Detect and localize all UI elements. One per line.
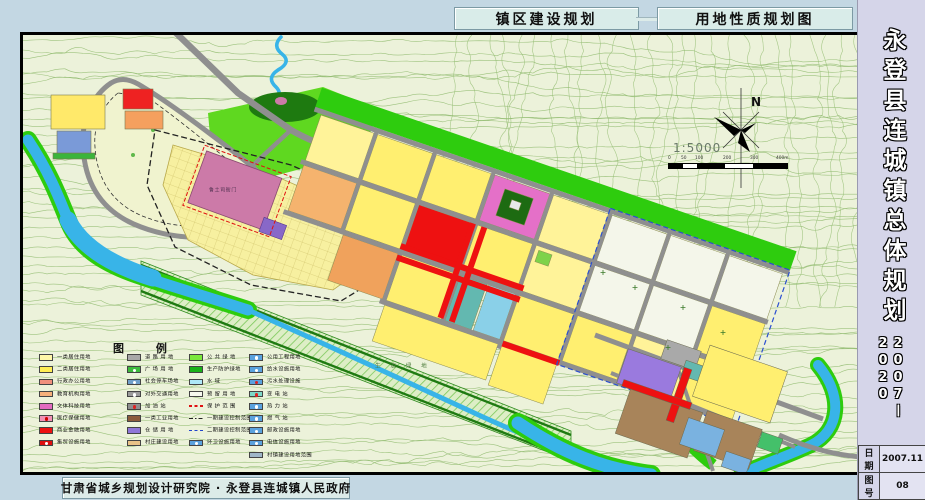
legend-item: 集贸设施用地 xyxy=(39,439,102,446)
legend-label: 一期建设控制范围 xyxy=(207,416,252,421)
legend-label: 一类居住用地 xyxy=(57,355,91,360)
legend-item: 教育机构用地 xyxy=(39,391,102,398)
legend-swatch xyxy=(189,403,203,410)
legend-label: 广 场 用 地 xyxy=(145,367,174,372)
legend-label: 电信设施用地 xyxy=(267,440,301,445)
legend-item: 社会停车场地 xyxy=(127,378,190,385)
legend-swatch xyxy=(189,427,203,434)
legend-item: 给水设施用地 xyxy=(249,366,327,373)
legend-swatch xyxy=(249,354,263,361)
legend-label: 二类居住用地 xyxy=(57,367,91,372)
title-left-text: 镇区建设规划 xyxy=(496,9,598,29)
sheet-number-value: 08 xyxy=(880,473,925,500)
legend-item: 文体科技用地 xyxy=(39,403,102,410)
title-box-left: 镇区建设规划 xyxy=(454,7,639,30)
legend-swatch xyxy=(127,427,141,434)
legend-label: 公用工程用地 xyxy=(267,355,301,360)
legend-item: 污水处理设施 xyxy=(249,378,327,385)
legend-swatch xyxy=(189,379,203,386)
legend-item: 一类居住用地 xyxy=(39,354,102,361)
scale-bar xyxy=(668,163,788,169)
legend-swatch xyxy=(189,415,203,422)
legend-item: 一类工业用地 xyxy=(127,415,190,422)
legend-column: 道 路 用 地广 场 用 地社会停车场地对外交通用地加 油 站一类工业用地仓 储… xyxy=(127,354,190,452)
legend-swatch xyxy=(39,415,53,422)
legend-label: 燃 气 站 xyxy=(267,416,288,421)
legend-swatch xyxy=(39,391,53,398)
legend-swatch xyxy=(249,379,263,386)
title-right-text: 用地性质规划图 xyxy=(696,9,815,29)
legend-item: 变 电 站 xyxy=(249,391,327,398)
legend-label: 二期建设控制范围 xyxy=(207,428,252,433)
scale-bar-ticks: 050100200300400m xyxy=(668,156,798,162)
title-connector xyxy=(636,17,658,21)
heritage-label: 鲁土司衙门 xyxy=(209,187,237,194)
legend-item: 行政办公用地 xyxy=(39,378,102,385)
north-label: N xyxy=(751,95,761,109)
legend-label: 道 路 用 地 xyxy=(145,355,174,360)
legend-item: 对外交通用地 xyxy=(127,391,190,398)
legend-swatch xyxy=(127,440,141,447)
legend-swatch xyxy=(249,440,263,447)
legend-label: 文体科技用地 xyxy=(57,404,91,409)
eco-green-label: 生 态 绿 地 xyxy=(375,362,431,370)
legend-swatch xyxy=(127,354,141,361)
legend-label: 环卫设施用地 xyxy=(207,440,241,445)
legend-swatch xyxy=(249,415,263,422)
title-block-table: 日期 2007.11 图号 08 xyxy=(858,445,925,500)
legend-label: 热 力 站 xyxy=(267,404,288,409)
scale-tick: 50 xyxy=(681,156,687,160)
legend-label: 加 油 站 xyxy=(145,404,166,409)
legend-label: 生产防护绿地 xyxy=(207,367,241,372)
legend-label: 预 留 用 地 xyxy=(207,391,236,396)
legend-label: 水 域 xyxy=(207,379,220,384)
legend-label: 医疗保健用地 xyxy=(57,416,91,421)
legend-swatch xyxy=(39,366,53,373)
legend-item: 加 油 站 xyxy=(127,403,190,410)
legend-column: 一类居住用地二类居住用地行政办公用地教育机构用地文体科技用地医疗保健用地商业金融… xyxy=(39,354,102,452)
scale-tick: 100 xyxy=(695,156,703,160)
legend-swatch xyxy=(39,379,53,386)
legend-swatch xyxy=(127,379,141,386)
scale-tick: 300 xyxy=(750,156,758,160)
legend-label: 行政办公用地 xyxy=(57,379,91,384)
legend-item: 燃 气 站 xyxy=(249,415,327,422)
date-value: 2007.11 xyxy=(880,446,925,473)
legend-swatch xyxy=(127,415,141,422)
legend-column: 公用工程用地给水设施用地污水处理设施变 电 站热 力 站燃 气 站邮政设施用地电… xyxy=(249,354,327,464)
scale-tick: 400m xyxy=(776,156,789,160)
legend-item: 仓 储 用 地 xyxy=(127,427,190,434)
legend-item: 广 场 用 地 xyxy=(127,366,190,373)
legend-swatch xyxy=(249,427,263,434)
legend-item: 村镇建设用地范围 xyxy=(249,452,327,459)
legend-swatch xyxy=(39,440,53,447)
legend-label: 变 电 站 xyxy=(267,391,288,396)
legend-item: 公用工程用地 xyxy=(249,354,327,361)
legend-swatch xyxy=(127,403,141,410)
legend-swatch xyxy=(189,391,203,398)
legend-item: 电信设施用地 xyxy=(249,439,327,446)
credit-text: 甘肃省城乡规划设计研究院 · 永登县连城镇人民政府 xyxy=(61,480,351,496)
legend-label: 商业金融用地 xyxy=(57,428,91,433)
map-legend: 图 例 一类居住用地二类居住用地行政办公用地教育机构用地文体科技用地医疗保健用地… xyxy=(31,338,331,468)
legend-item: 村庄建设用地 xyxy=(127,439,190,446)
legend-swatch xyxy=(39,427,53,434)
legend-label: 村镇建设用地范围 xyxy=(267,452,312,457)
legend-label: 保 护 范 围 xyxy=(207,404,236,409)
legend-label: 社会停车场地 xyxy=(145,379,179,384)
legend-label: 一类工业用地 xyxy=(145,416,179,421)
legend-label: 集贸设施用地 xyxy=(57,440,91,445)
legend-label: 邮政设施用地 xyxy=(267,428,301,433)
drawing-title: 永登县连城镇总体规划 xyxy=(875,28,909,338)
scale-text: 1:5000 xyxy=(673,141,721,155)
legend-swatch xyxy=(39,354,53,361)
legend-label: 对外交通用地 xyxy=(145,391,179,396)
planning-map: N 图 例 一类居住用地二类居住用地行政办公用地教育机构用地文体科技用地医疗保健… xyxy=(20,32,861,475)
legend-swatch xyxy=(249,403,263,410)
legend-swatch xyxy=(127,391,141,398)
legend-swatch xyxy=(189,366,203,373)
legend-label: 仓 储 用 地 xyxy=(145,428,174,433)
plan-period: 2007—2020 xyxy=(876,336,909,456)
legend-item: 二类居住用地 xyxy=(39,366,102,373)
legend-label: 公 共 绿 地 xyxy=(207,355,236,360)
legend-label: 给水设施用地 xyxy=(267,367,301,372)
legend-item: 商业金融用地 xyxy=(39,427,102,434)
legend-item: 道 路 用 地 xyxy=(127,354,190,361)
legend-swatch xyxy=(249,391,263,398)
legend-swatch xyxy=(127,366,141,373)
legend-swatch xyxy=(189,354,203,361)
legend-label: 污水处理设施 xyxy=(267,379,301,384)
legend-item: 热 力 站 xyxy=(249,403,327,410)
legend-item: 邮政设施用地 xyxy=(249,427,327,434)
sheet-number-label: 图号 xyxy=(859,473,880,500)
scale-tick: 0 xyxy=(668,156,671,160)
title-box-right: 用地性质规划图 xyxy=(657,7,853,30)
date-label: 日期 xyxy=(859,446,880,473)
sidebar: 永登县连城镇总体规划 2007—2020 日期 2007.11 图号 08 xyxy=(857,0,925,500)
legend-item: 医疗保健用地 xyxy=(39,415,102,422)
legend-swatch xyxy=(249,366,263,373)
credit-box: 甘肃省城乡规划设计研究院 · 永登县连城镇人民政府 xyxy=(62,477,350,499)
scale-tick: 200 xyxy=(723,156,731,160)
legend-swatch xyxy=(189,440,203,447)
legend-swatch xyxy=(39,403,53,410)
legend-label: 教育机构用地 xyxy=(57,391,91,396)
page: 镇区建设规划 用地性质规划图 xyxy=(0,0,925,500)
legend-label: 村庄建设用地 xyxy=(145,440,179,445)
legend-swatch xyxy=(249,452,263,459)
